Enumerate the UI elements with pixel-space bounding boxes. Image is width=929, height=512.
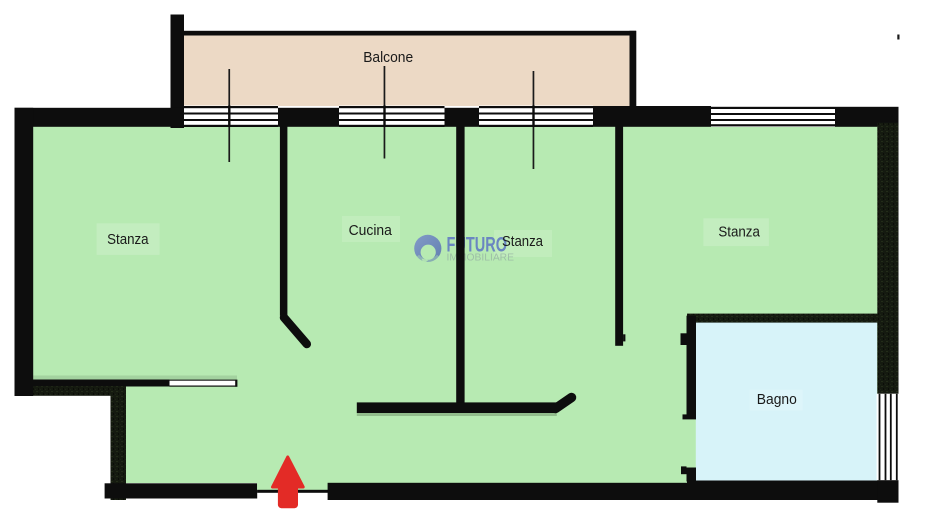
svg-text:Stanza: Stanza <box>718 224 760 241</box>
svg-text:Cucina: Cucina <box>349 222 393 239</box>
svg-text:Bagno: Bagno <box>757 391 797 408</box>
svg-text:Stanza: Stanza <box>502 233 544 250</box>
svg-text:Balcone: Balcone <box>363 49 413 66</box>
svg-text:Stanza: Stanza <box>107 231 149 248</box>
